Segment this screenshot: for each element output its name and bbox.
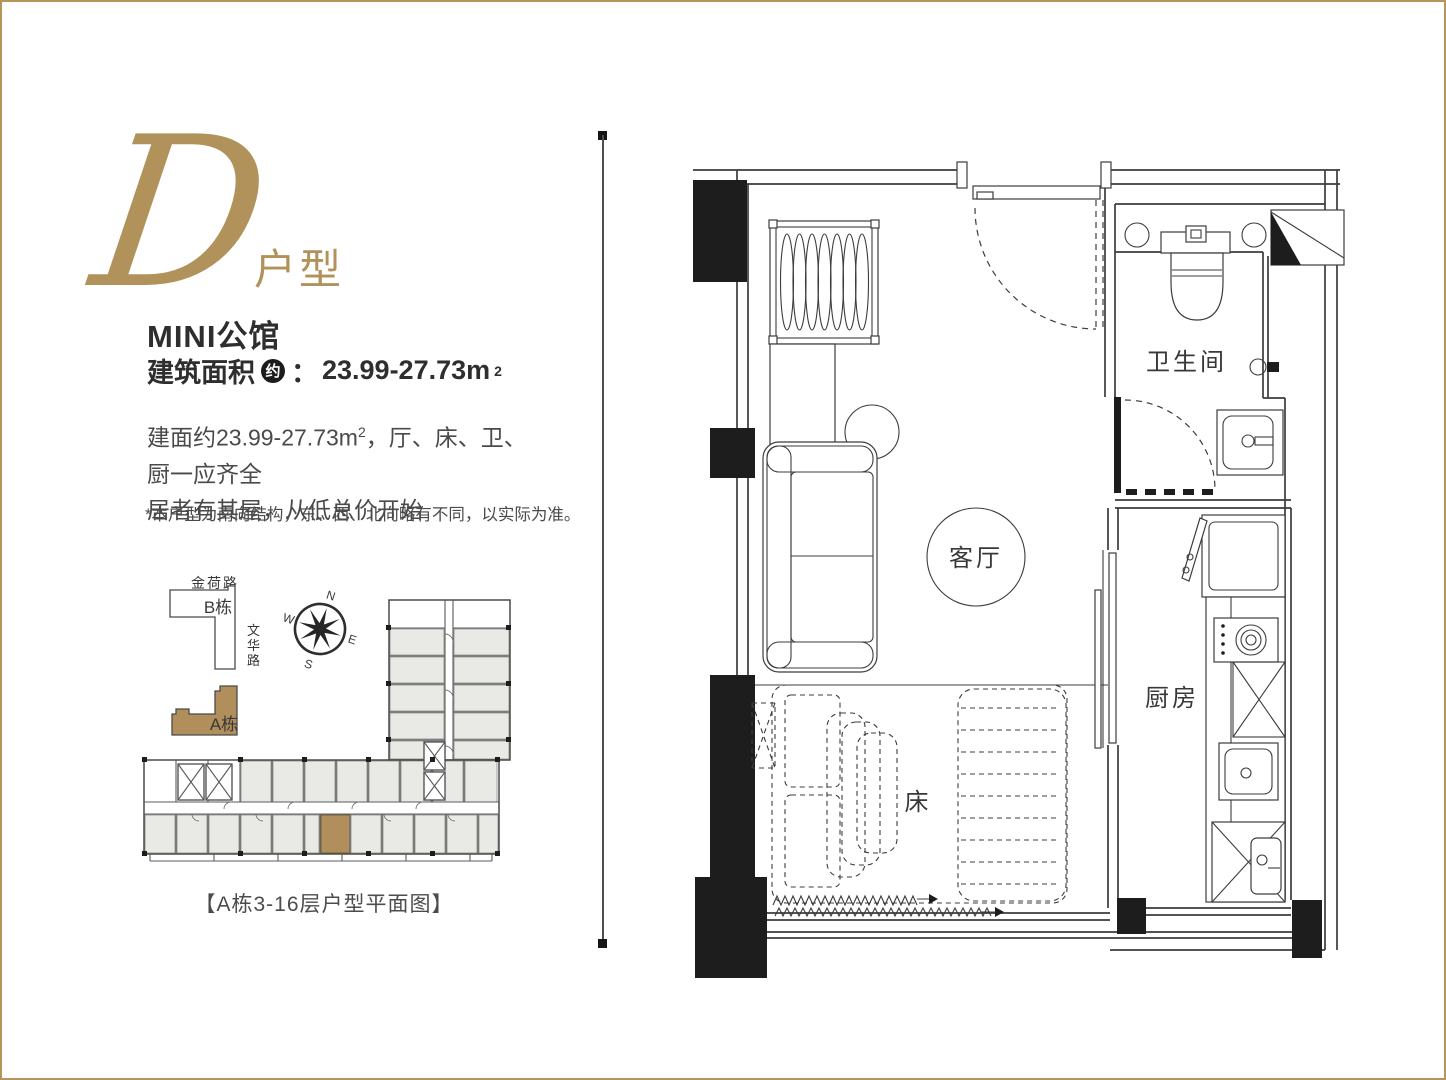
fridge-icon bbox=[1182, 515, 1285, 597]
nightstand-icon bbox=[752, 703, 775, 768]
sliding-door-panel-2 bbox=[1095, 590, 1101, 748]
site-highlighted-unit bbox=[321, 815, 350, 853]
entry-door-icon bbox=[957, 162, 1111, 332]
area-superscript: 2 bbox=[494, 363, 502, 379]
area-value: 23.99-27.73m bbox=[322, 355, 490, 386]
svg-text:客厅: 客厅 bbox=[949, 545, 1003, 572]
svg-text:床: 床 bbox=[905, 789, 932, 816]
kitchen: 厨房 bbox=[1145, 515, 1285, 902]
unit-title: MINI公馆 bbox=[147, 311, 280, 356]
washer-icon bbox=[1212, 822, 1285, 902]
desc-line1: 建面约23.99-27.73m bbox=[147, 425, 358, 451]
area-line: 建筑面积约：23.99-27.73m2 bbox=[147, 351, 502, 390]
stove-icon bbox=[1214, 618, 1278, 662]
toilet-icon bbox=[1161, 226, 1230, 320]
sofa-icon bbox=[763, 442, 877, 672]
living-room-label: 客厅 bbox=[927, 508, 1025, 606]
unit-letter-suffix: 户型 bbox=[254, 236, 344, 297]
compass-icon: N E S W bbox=[270, 577, 369, 682]
disclaimer-note: *本户型为南向结构，东、西、北向略有不同，以实际为准。 bbox=[145, 501, 580, 525]
compass-e: E bbox=[346, 632, 358, 648]
flyer-page: D 户型 MINI公馆 建筑面积约：23.99-27.73m2 建面约23.99… bbox=[0, 0, 1446, 1080]
blanket-icon bbox=[857, 733, 897, 853]
site-wing-vertical bbox=[386, 600, 511, 760]
compass-n: N bbox=[325, 588, 338, 604]
wardrobe-icon bbox=[769, 220, 879, 344]
unit-letter-logo: D bbox=[83, 110, 279, 318]
sink-icon bbox=[1219, 743, 1278, 800]
divider-line bbox=[602, 135, 604, 941]
bathroom-door-icon bbox=[1114, 397, 1217, 493]
site-plan-caption: 【A栋3-16层户型平面图】 bbox=[164, 888, 484, 918]
compass-s: S bbox=[303, 656, 315, 672]
blanket-icon bbox=[842, 722, 880, 865]
building-b-label: B栋 bbox=[204, 598, 232, 617]
floor-plan: 客厅 卫生间 bbox=[685, 160, 1350, 1015]
road-right-label: 文 华 路 bbox=[247, 623, 264, 668]
bed-area: 床 bbox=[752, 685, 1067, 917]
pillow-icon bbox=[785, 695, 840, 787]
area-colon: ： bbox=[291, 351, 318, 390]
building-a-label: A栋 bbox=[210, 715, 238, 734]
circled-approx-icon: 约 bbox=[261, 359, 285, 383]
washbasin-icon bbox=[1217, 410, 1283, 475]
valve-icon bbox=[1250, 359, 1279, 375]
site-wing-horizontal bbox=[142, 742, 500, 861]
site-key: 金荷路 B栋 文 华 路 A栋 bbox=[170, 575, 264, 735]
svg-text:厨房: 厨房 bbox=[1145, 685, 1199, 712]
sliding-door-panel bbox=[1109, 553, 1116, 743]
corner-shelf-icon bbox=[1271, 210, 1344, 265]
site-plan: 金荷路 B栋 文 华 路 A栋 N E S W bbox=[142, 562, 562, 882]
pipe-icon bbox=[1125, 223, 1149, 247]
svg-text:卫生间: 卫生间 bbox=[1146, 349, 1227, 376]
desc-superscript: 2 bbox=[358, 424, 366, 440]
pipe-icon bbox=[1242, 223, 1266, 247]
blanket-icon bbox=[827, 713, 865, 877]
duvet-icon bbox=[958, 689, 1066, 901]
area-prefix: 建筑面积 bbox=[147, 351, 255, 390]
divider-cap-bottom bbox=[598, 939, 607, 948]
